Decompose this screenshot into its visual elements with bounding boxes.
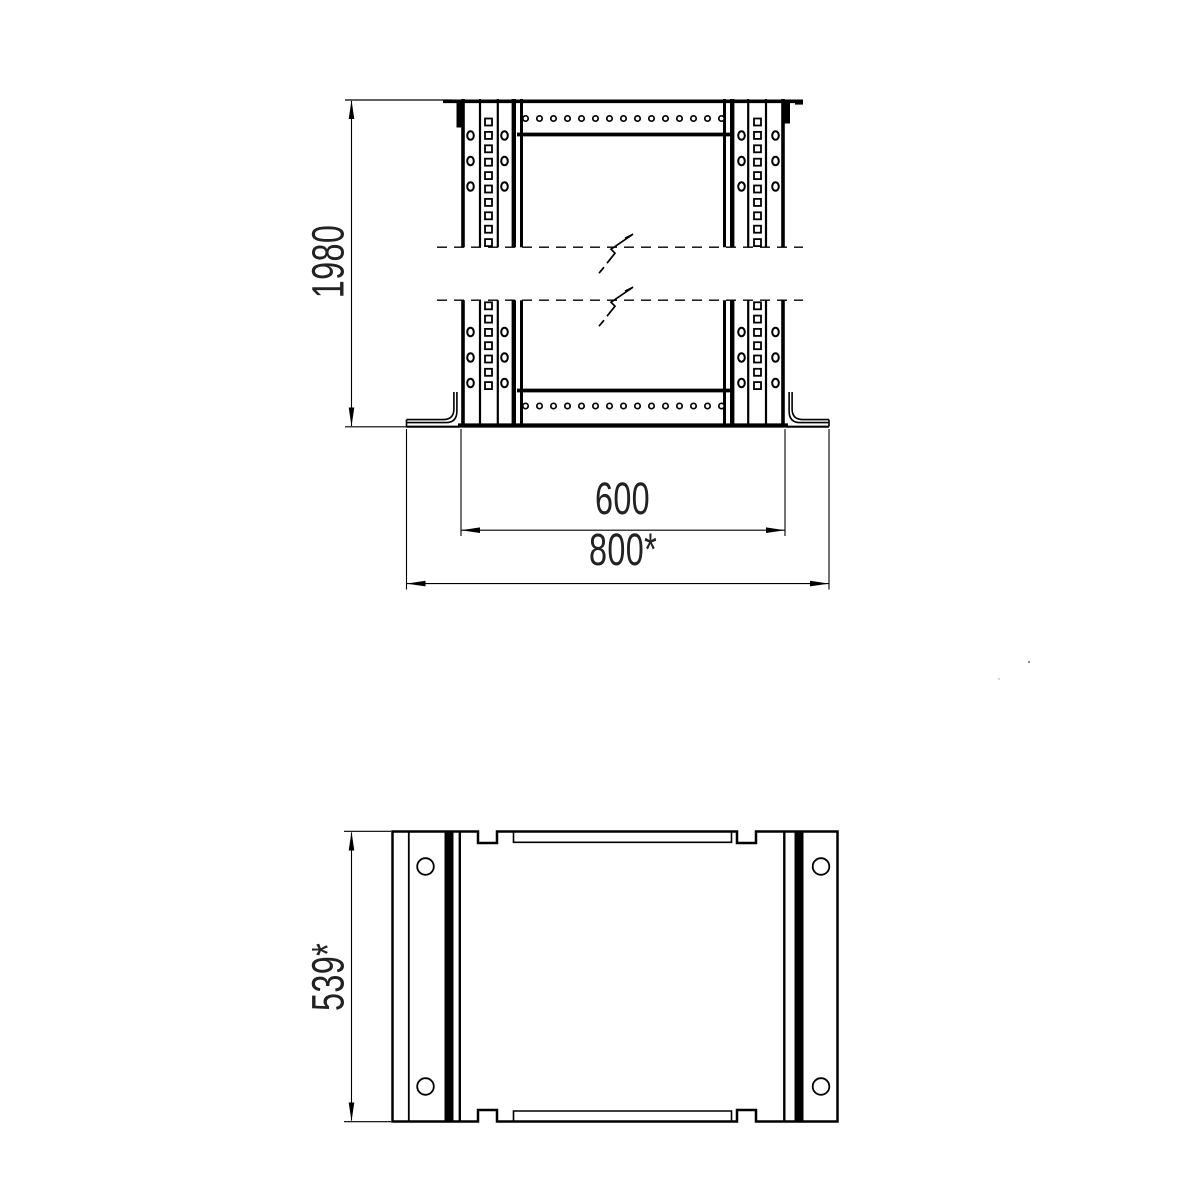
- panel-hole: [593, 403, 598, 408]
- oval-mounting-hole: [501, 131, 508, 140]
- panel-hole: [551, 116, 556, 121]
- oval-mounting-hole: [738, 182, 745, 191]
- oval-mounting-hole: [738, 379, 745, 388]
- square-mounting-hole: [485, 382, 492, 389]
- oval-mounting-hole: [772, 157, 779, 166]
- panel-hole: [649, 403, 654, 408]
- panel-hole: [607, 403, 612, 408]
- square-mounting-hole: [485, 369, 492, 376]
- frame-top-right-step: [795, 101, 803, 105]
- panel-hole: [551, 403, 556, 408]
- square-mounting-hole: [754, 342, 761, 349]
- oval-mounting-hole: [501, 379, 508, 388]
- corner-hole: [813, 858, 830, 875]
- oval-mounting-hole: [467, 379, 474, 388]
- panel-hole: [719, 403, 724, 408]
- oval-mounting-hole: [772, 131, 779, 140]
- plan-right-rail-bar: [795, 832, 804, 1122]
- panel-hole: [593, 116, 598, 121]
- panel-hole: [565, 403, 570, 408]
- dim-height-label: 1980: [304, 225, 353, 298]
- technical-drawing-canvas: 1980 600 800*: [0, 0, 1200, 1200]
- drawing-page: 1980 600 800*: [0, 0, 1200, 1200]
- panel-hole: [607, 116, 612, 121]
- square-mounting-hole: [754, 356, 761, 363]
- oval-mounting-hole: [467, 182, 474, 191]
- frame-top-right-lip: [784, 100, 790, 124]
- plan-left-rail-bar: [445, 832, 454, 1122]
- panel-hole: [621, 116, 626, 121]
- oval-mounting-hole: [501, 157, 508, 166]
- panel-hole: [523, 403, 528, 408]
- square-mounting-hole: [754, 316, 761, 323]
- square-mounting-hole: [754, 226, 761, 233]
- dim-depth-label: 539*: [304, 943, 353, 1011]
- panel-hole: [537, 403, 542, 408]
- panel-hole: [537, 116, 542, 121]
- square-mounting-hole: [485, 119, 492, 126]
- oval-mounting-hole: [738, 131, 745, 140]
- square-mounting-hole: [485, 226, 492, 233]
- panel-hole: [705, 116, 710, 121]
- square-mounting-hole: [485, 212, 492, 219]
- oval-mounting-hole: [467, 353, 474, 362]
- square-mounting-hole: [485, 172, 492, 179]
- panel-hole: [635, 403, 640, 408]
- corner-hole: [813, 1078, 830, 1095]
- panel-hole: [677, 116, 682, 121]
- panel-hole: [635, 116, 640, 121]
- paper-speck: [1028, 661, 1030, 663]
- square-mounting-hole: [754, 329, 761, 336]
- panel-hole: [691, 403, 696, 408]
- oval-mounting-hole: [738, 157, 745, 166]
- panel-hole: [621, 403, 626, 408]
- square-mounting-hole: [485, 199, 492, 206]
- square-mounting-hole: [754, 132, 761, 139]
- panel-hole: [565, 116, 570, 121]
- corner-hole: [417, 1078, 434, 1095]
- square-mounting-hole: [754, 212, 761, 219]
- square-mounting-hole: [485, 342, 492, 349]
- square-mounting-hole: [485, 132, 492, 139]
- panel-hole: [523, 116, 528, 121]
- dim-overall-width-label: 800*: [589, 526, 657, 575]
- square-mounting-hole: [485, 145, 492, 152]
- square-mounting-hole: [485, 159, 492, 166]
- oval-mounting-hole: [772, 353, 779, 362]
- square-mounting-hole: [754, 382, 761, 389]
- paper-speck: [998, 678, 999, 679]
- corner-hole: [417, 858, 434, 875]
- square-mounting-hole: [485, 239, 492, 246]
- panel-hole: [579, 116, 584, 121]
- panel-hole: [579, 403, 584, 408]
- square-mounting-hole: [754, 302, 761, 309]
- square-mounting-hole: [485, 186, 492, 193]
- square-mounting-hole: [754, 159, 761, 166]
- oval-mounting-hole: [772, 182, 779, 191]
- square-mounting-hole: [754, 172, 761, 179]
- square-mounting-hole: [754, 239, 761, 246]
- panel-hole: [705, 403, 710, 408]
- panel-hole: [677, 403, 682, 408]
- square-mounting-hole: [485, 316, 492, 323]
- oval-mounting-hole: [501, 182, 508, 191]
- panel-hole: [719, 116, 724, 121]
- square-mounting-hole: [754, 119, 761, 126]
- oval-mounting-hole: [501, 353, 508, 362]
- dim-rail-spacing-label: 600: [595, 475, 650, 524]
- panel-hole: [649, 116, 654, 121]
- panel-hole: [691, 116, 696, 121]
- square-mounting-hole: [754, 199, 761, 206]
- oval-mounting-hole: [772, 328, 779, 337]
- panel-hole: [663, 116, 668, 121]
- square-mounting-hole: [485, 329, 492, 336]
- oval-mounting-hole: [467, 131, 474, 140]
- square-mounting-hole: [754, 369, 761, 376]
- oval-mounting-hole: [467, 157, 474, 166]
- oval-mounting-hole: [772, 379, 779, 388]
- square-mounting-hole: [754, 186, 761, 193]
- oval-mounting-hole: [501, 328, 508, 337]
- square-mounting-hole: [485, 302, 492, 309]
- oval-mounting-hole: [738, 328, 745, 337]
- panel-hole: [663, 403, 668, 408]
- square-mounting-hole: [754, 145, 761, 152]
- square-mounting-hole: [485, 356, 492, 363]
- oval-mounting-hole: [467, 328, 474, 337]
- oval-mounting-hole: [738, 353, 745, 362]
